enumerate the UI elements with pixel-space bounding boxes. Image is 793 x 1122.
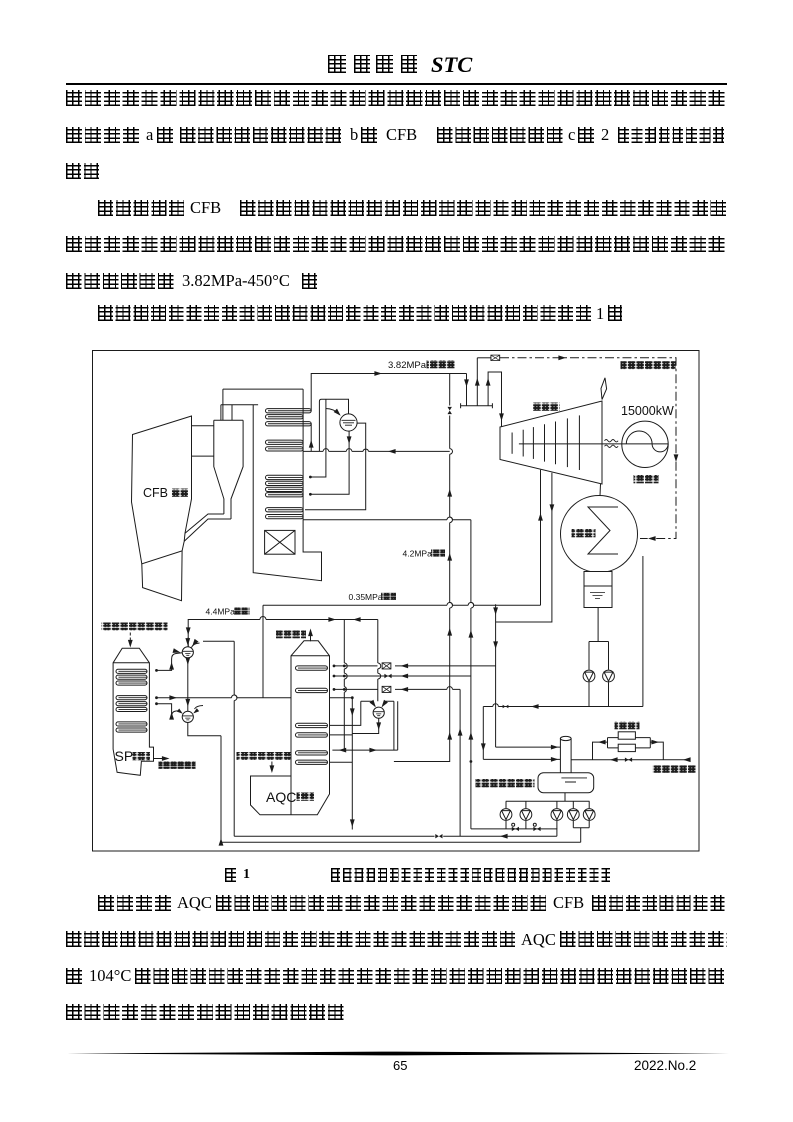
svg-text:CFB: CFB [143,486,168,500]
svg-text:3.82MPa: 3.82MPa [388,360,427,371]
svg-text:4.2MPa: 4.2MPa [403,549,433,559]
svg-text:SP: SP [115,748,134,764]
svg-text:15000kW: 15000kW [621,404,674,418]
svg-text:4.4MPa: 4.4MPa [206,607,236,617]
svg-text:AQC: AQC [266,789,296,805]
svg-text:0.35MPa: 0.35MPa [349,592,383,602]
